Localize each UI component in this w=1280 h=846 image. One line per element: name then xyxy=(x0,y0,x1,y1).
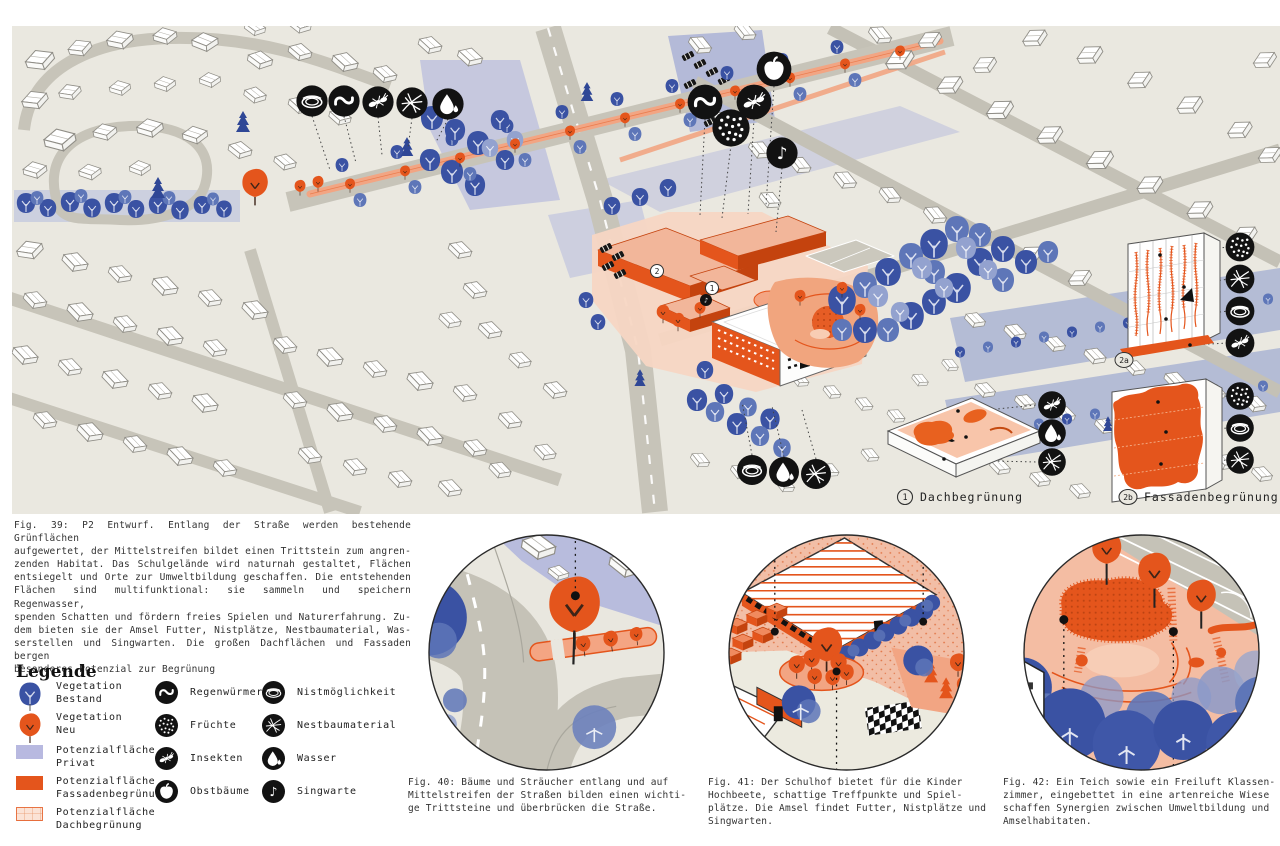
insect-icon xyxy=(155,747,178,770)
facade-panel-2a xyxy=(1120,233,1220,358)
legend-item-fruechte: Früchte xyxy=(155,714,236,737)
orange-tree-icon xyxy=(16,711,44,743)
drop-icon xyxy=(262,747,285,770)
orange-swatch xyxy=(16,775,44,791)
twigs-icon xyxy=(262,714,285,737)
grid-swatch xyxy=(16,806,44,822)
fig39-caption: Fig. 39: P2 Entwurf. Entlang der Straße … xyxy=(14,519,411,676)
badge-building-2: 2 xyxy=(651,265,664,278)
legend-item-potenzial-dach: PotenzialflächeDachbegrünung xyxy=(16,806,155,832)
legend-item-singwarte: Singwarte xyxy=(262,780,357,803)
svg-text:1: 1 xyxy=(710,284,715,293)
svg-text:2a: 2a xyxy=(1119,356,1129,365)
lavender-swatch xyxy=(16,744,44,760)
fig42-caption: Fig. 42: Ein Teich sowie ein Freiluft Kl… xyxy=(1003,776,1280,828)
main-map: ♪ xyxy=(0,0,1280,515)
svg-text:2: 2 xyxy=(655,267,660,276)
fig41-caption: Fig. 41: Der Schulhof bietet für die Kin… xyxy=(708,776,1000,828)
fig42-illustration xyxy=(1022,533,1261,772)
legend-item-insekten: Insekten xyxy=(155,747,243,770)
blue-tree-icon xyxy=(16,680,44,712)
legend-item-potenzial-privat: PotenzialflächePrivat xyxy=(16,744,155,770)
svg-text:2b: 2b xyxy=(1123,493,1133,502)
legend-item-vegetation-bestand: VegetationBestand xyxy=(16,680,122,712)
facade-panel-2b xyxy=(1112,379,1222,502)
legend-item-potenzial-fassade: PotenzialflächeFassadenbegrünung xyxy=(16,775,169,801)
nest-icon xyxy=(262,681,285,704)
fig40-caption: Fig. 40: Bäume und Sträucher entlang und… xyxy=(408,776,700,815)
label-dachbegruenung: Dachbegrünung xyxy=(920,490,1023,504)
legend-item-obstbaeume: Obstbäume xyxy=(155,780,250,803)
legend-item-nestbaumaterial: Nestbaumaterial xyxy=(262,714,396,737)
legend-item-nistmoeglichkeit: Nistmöglichkeit xyxy=(262,681,396,704)
fruits-icon xyxy=(155,714,178,737)
label-fassadenbegruenung: Fassadenbegrünung xyxy=(1144,490,1279,504)
legend-item-vegetation-neu: VegetationNeu xyxy=(16,711,122,743)
note-icon xyxy=(262,780,285,803)
apple-icon xyxy=(155,780,178,803)
badge-building-1: 1 xyxy=(706,282,719,295)
legend-item-wasser: Wasser xyxy=(262,747,337,770)
legend-item-regenwuermer: Regenwürmer xyxy=(155,681,263,704)
svg-text:1: 1 xyxy=(902,493,907,503)
fig40-illustration xyxy=(427,533,666,772)
presentation-board: ♪ xyxy=(0,0,1280,846)
badge-fassade-label: 2b xyxy=(1119,490,1137,505)
legend-title: Legende xyxy=(16,662,97,682)
fig41-illustration xyxy=(727,533,966,772)
badge-2a: 2a xyxy=(1115,353,1133,368)
badge-dach-label: 1 xyxy=(898,490,913,505)
worm-icon xyxy=(155,681,178,704)
